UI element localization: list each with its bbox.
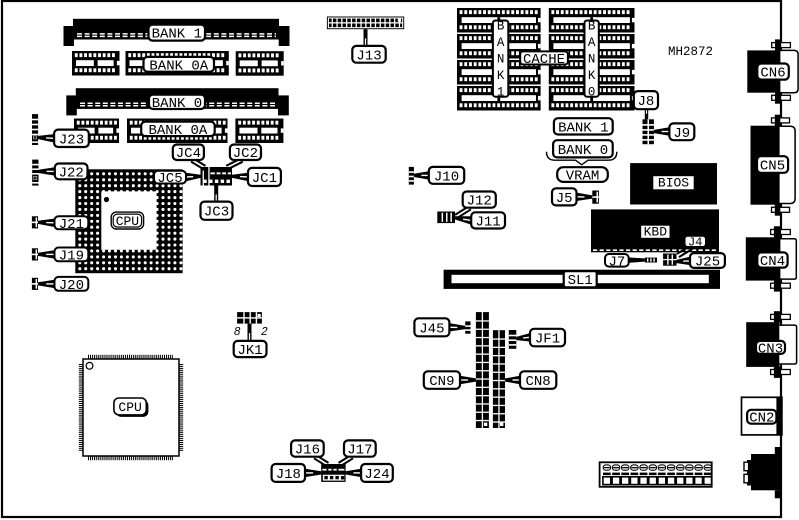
svg-text:J20: J20 xyxy=(59,278,84,294)
svg-text:CPU: CPU xyxy=(118,400,141,415)
svg-text:VRAM: VRAM xyxy=(566,169,600,185)
svg-text:BANK 0A: BANK 0A xyxy=(148,123,207,139)
svg-text:CN4: CN4 xyxy=(760,254,785,270)
svg-text:J18: J18 xyxy=(276,467,301,483)
svg-text:CN6: CN6 xyxy=(760,66,785,82)
svg-text:CACHE: CACHE xyxy=(523,52,565,68)
svg-text:K: K xyxy=(497,69,505,83)
svg-text:BANK 1: BANK 1 xyxy=(558,120,608,136)
svg-text:A: A xyxy=(588,36,596,50)
svg-text:A: A xyxy=(497,36,505,50)
svg-text:CN5: CN5 xyxy=(760,159,785,175)
svg-text:J10: J10 xyxy=(434,169,459,185)
svg-text:JC2: JC2 xyxy=(233,146,258,162)
svg-text:JK1: JK1 xyxy=(237,343,262,359)
svg-text:JF1: JF1 xyxy=(535,332,560,348)
svg-text:BANK 0: BANK 0 xyxy=(152,96,202,112)
svg-text:B: B xyxy=(588,19,596,33)
svg-text:1: 1 xyxy=(497,86,505,100)
svg-text:JC4: JC4 xyxy=(176,146,201,162)
svg-text:N: N xyxy=(588,52,596,66)
svg-text:BIOS: BIOS xyxy=(658,176,689,191)
svg-text:J24: J24 xyxy=(364,467,389,483)
svg-text:J4: J4 xyxy=(688,236,702,250)
svg-text:J5: J5 xyxy=(556,191,573,207)
svg-text:CN8: CN8 xyxy=(525,374,550,390)
svg-text:N: N xyxy=(497,52,505,66)
svg-text:J9: J9 xyxy=(673,126,690,142)
svg-text:2: 2 xyxy=(261,326,268,339)
svg-text:JC3: JC3 xyxy=(204,205,229,221)
svg-text:8: 8 xyxy=(234,326,241,339)
svg-text:CN2: CN2 xyxy=(749,411,774,427)
svg-text:SL1: SL1 xyxy=(568,273,593,289)
svg-text:KBD: KBD xyxy=(644,225,668,240)
svg-text:B: B xyxy=(497,19,505,33)
svg-text:0: 0 xyxy=(588,86,596,100)
svg-text:MH2872: MH2872 xyxy=(668,45,713,59)
svg-text:BANK 0: BANK 0 xyxy=(558,143,608,159)
svg-text:J23: J23 xyxy=(59,132,84,148)
svg-text:J7: J7 xyxy=(608,254,625,270)
svg-text:CN3: CN3 xyxy=(758,341,783,357)
svg-text:J12: J12 xyxy=(467,194,492,210)
svg-text:J25: J25 xyxy=(695,255,720,271)
svg-text:J8: J8 xyxy=(637,94,654,110)
svg-text:J16: J16 xyxy=(295,443,320,459)
svg-text:J22: J22 xyxy=(59,165,84,181)
svg-text:J45: J45 xyxy=(419,321,444,337)
svg-text:J21: J21 xyxy=(59,217,84,233)
svg-text:J13: J13 xyxy=(356,48,381,64)
svg-text:J19: J19 xyxy=(59,248,84,264)
svg-text:JC1: JC1 xyxy=(252,171,277,187)
svg-text:BANK 0A: BANK 0A xyxy=(149,58,208,74)
svg-text:J17: J17 xyxy=(347,443,372,459)
svg-text:CN9: CN9 xyxy=(429,374,454,390)
svg-text:CPU: CPU xyxy=(116,214,139,229)
svg-text:BANK 1: BANK 1 xyxy=(152,27,202,43)
svg-text:J11: J11 xyxy=(475,214,500,230)
svg-text:K: K xyxy=(588,69,596,83)
svg-text:JC5: JC5 xyxy=(157,171,182,187)
